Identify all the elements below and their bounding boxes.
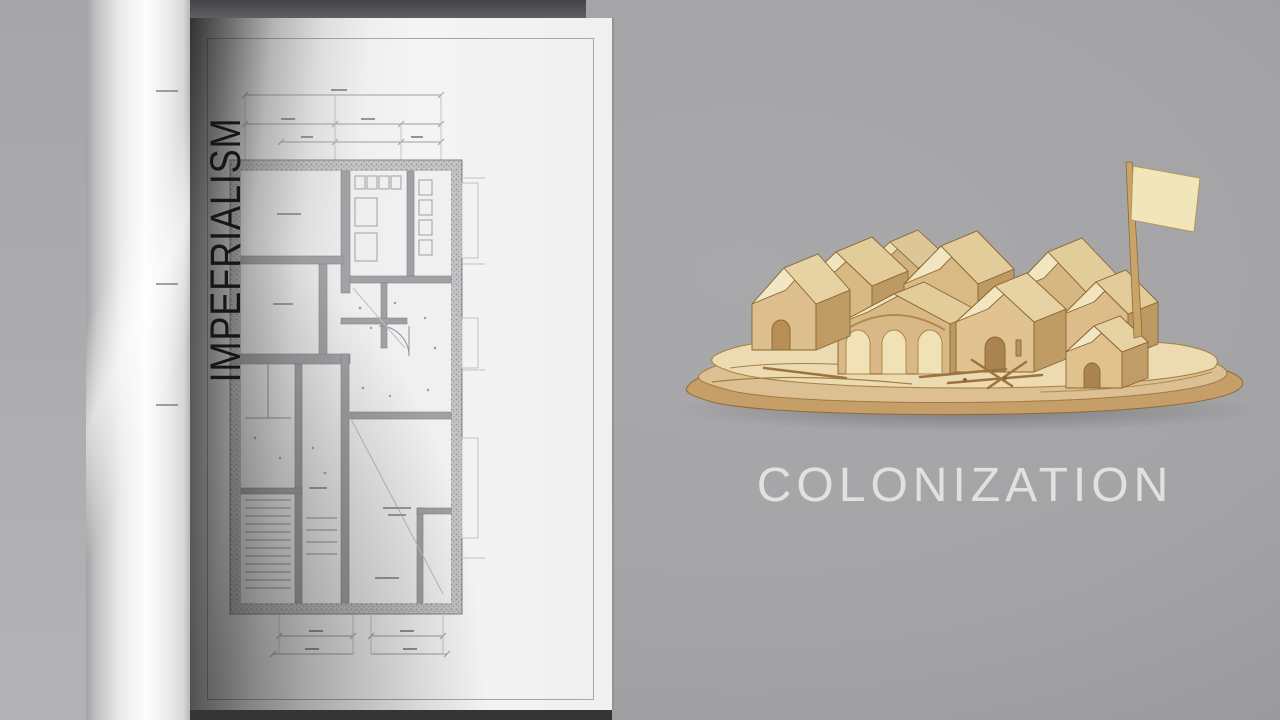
- spine-highlight: [86, 0, 190, 720]
- spine-tick-mark: [156, 404, 178, 406]
- spine-title: IMPEFRIALISM: [200, 99, 252, 401]
- wall-background-left: [0, 0, 88, 720]
- caption-title: COLONIZATION: [660, 458, 1270, 513]
- flag-icon: [1126, 162, 1200, 338]
- book-spine: IMPEFRIALISM: [86, 0, 190, 720]
- spine-tick-mark: [156, 90, 178, 92]
- scene: IMPEFRIALISM: [0, 0, 1280, 720]
- wooden-village-model: [660, 130, 1270, 440]
- page-inner-frame: [207, 38, 594, 700]
- spine-tick-mark: [156, 283, 178, 285]
